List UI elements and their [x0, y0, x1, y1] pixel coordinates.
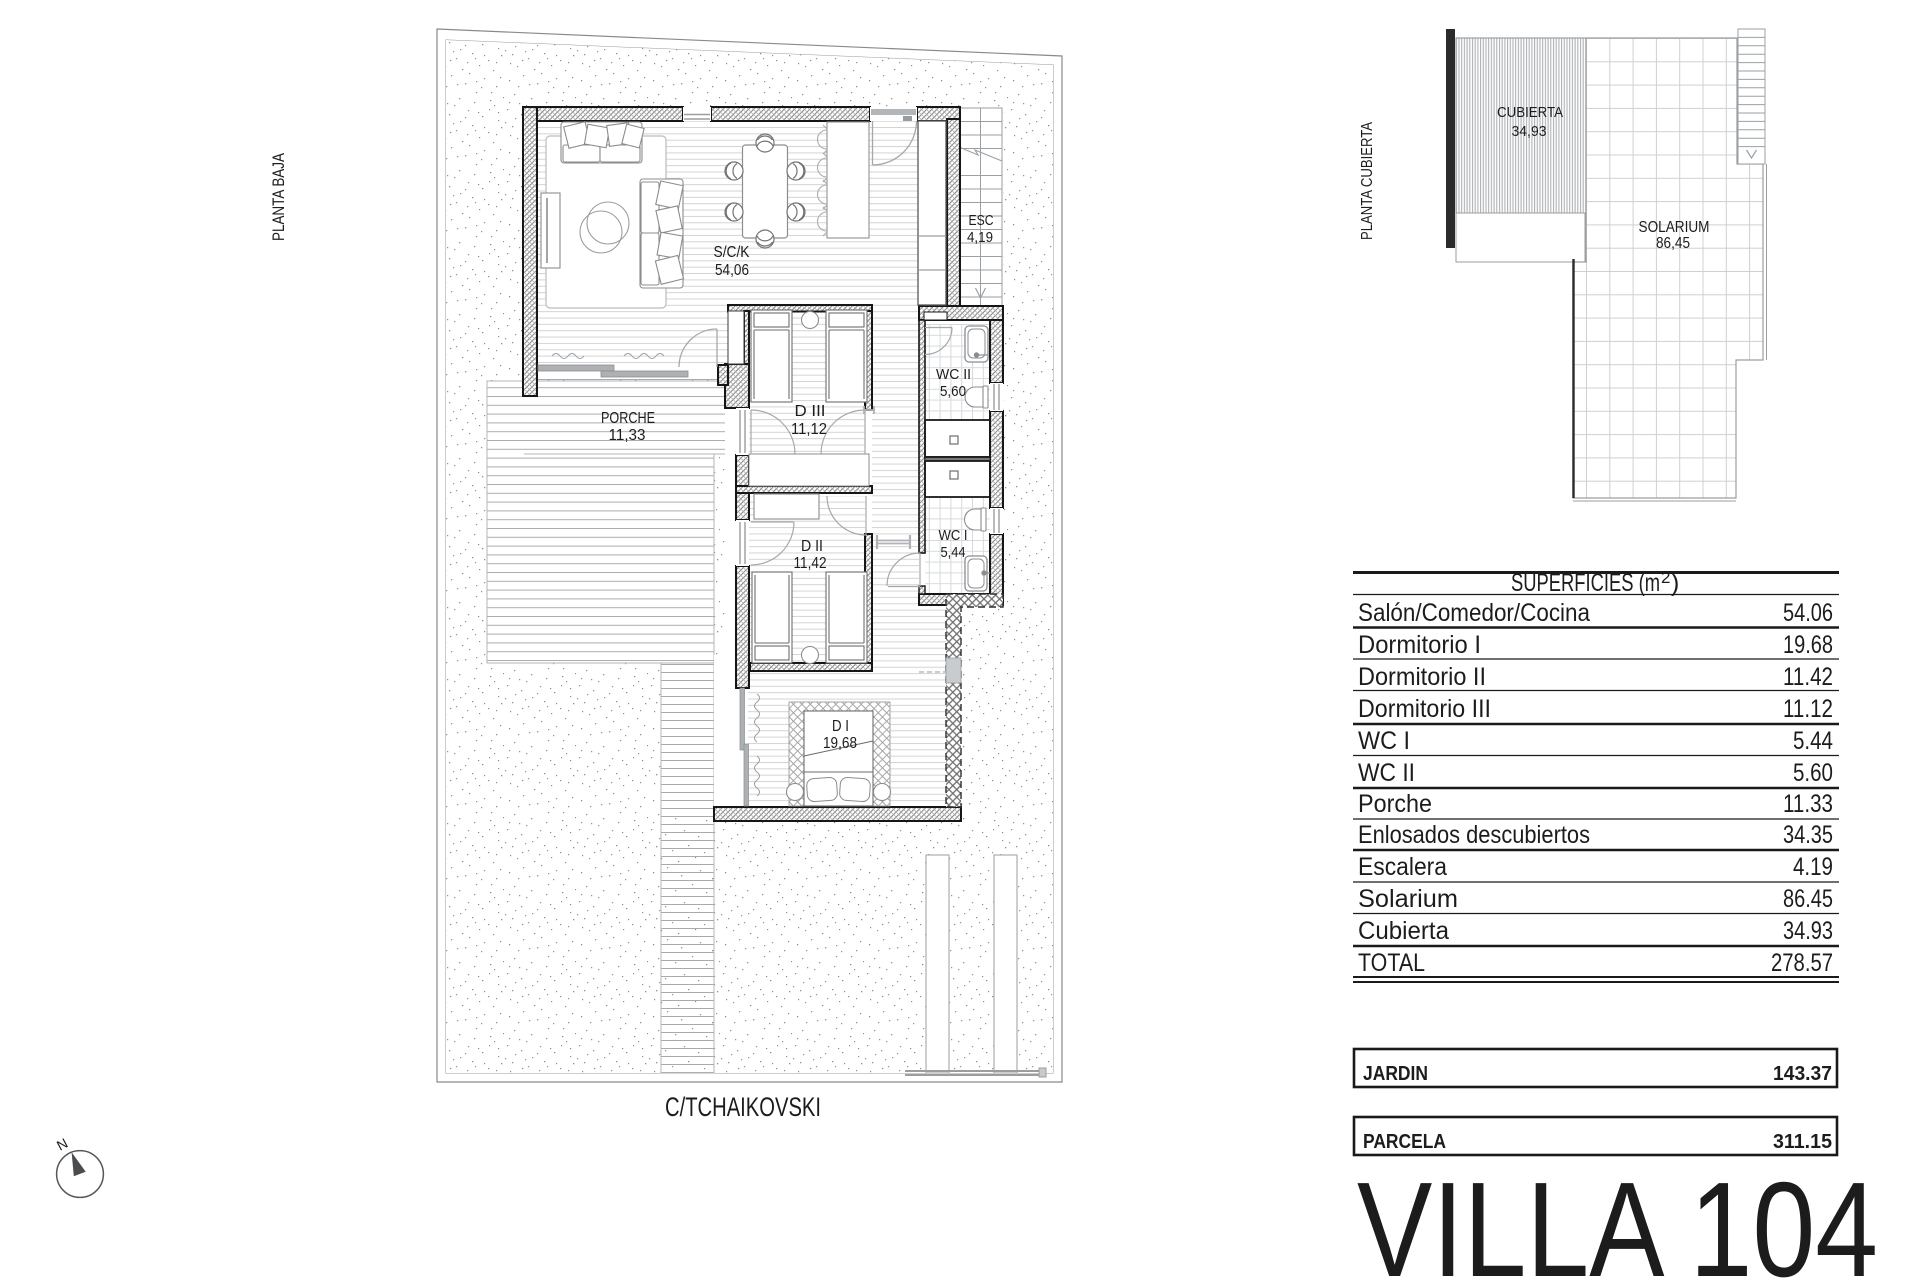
svg-text:S/C/K: S/C/K: [714, 244, 751, 261]
svg-text:Cubierta: Cubierta: [1358, 917, 1449, 945]
svg-text:C/TCHAIKOVSKI: C/TCHAIKOVSKI: [665, 1092, 821, 1122]
svg-text:WC II: WC II: [1358, 759, 1415, 787]
svg-text:SUPERFICIES (m: SUPERFICIES (m: [1511, 569, 1660, 597]
svg-text:Enlosados descubiertos: Enlosados descubiertos: [1358, 821, 1590, 849]
svg-text:34.35: 34.35: [1783, 821, 1833, 849]
svg-text:WC II: WC II: [936, 366, 971, 383]
svg-text:Dormitorio I: Dormitorio I: [1358, 631, 1481, 659]
svg-text:5.60: 5.60: [1793, 759, 1833, 787]
svg-text:Escalera: Escalera: [1358, 853, 1447, 881]
svg-text:86.45: 86.45: [1783, 885, 1833, 913]
svg-text:JARDIN: JARDIN: [1363, 1063, 1428, 1085]
svg-text:54,06: 54,06: [715, 262, 749, 279]
svg-text:278.57: 278.57: [1771, 949, 1833, 977]
svg-text:19,68: 19,68: [823, 735, 857, 752]
svg-text:D III: D III: [795, 403, 826, 420]
svg-text:4.19: 4.19: [1793, 853, 1833, 881]
svg-text:Dormitorio II: Dormitorio II: [1358, 663, 1486, 691]
svg-text:86,45: 86,45: [1656, 235, 1690, 252]
svg-text:PLANTA CUBIERTA: PLANTA CUBIERTA: [1359, 122, 1376, 240]
svg-text:19.68: 19.68: [1783, 631, 1833, 659]
svg-text:D I: D I: [832, 718, 849, 735]
svg-text:5,44: 5,44: [941, 544, 966, 561]
svg-text:Dormitorio III: Dormitorio III: [1358, 695, 1491, 723]
svg-text:VILLA 104: VILLA 104: [1357, 1154, 1878, 1280]
svg-text:Solarium: Solarium: [1358, 885, 1458, 913]
svg-text:WC I: WC I: [1358, 727, 1410, 755]
svg-text:11.42: 11.42: [1783, 663, 1833, 691]
svg-text:54.06: 54.06: [1783, 599, 1833, 627]
svg-text:SOLARIUM: SOLARIUM: [1639, 219, 1710, 236]
svg-text:11,12: 11,12: [791, 421, 827, 438]
svg-text:5.44: 5.44: [1793, 727, 1833, 755]
svg-text:143.37: 143.37: [1773, 1063, 1832, 1085]
svg-text:): ): [1671, 569, 1679, 597]
svg-text:ESC: ESC: [969, 212, 994, 229]
svg-text:PLANTA BAJA: PLANTA BAJA: [269, 152, 288, 241]
svg-text:TOTAL: TOTAL: [1358, 949, 1425, 977]
svg-text:WC I: WC I: [939, 527, 968, 544]
svg-text:CUBIERTA: CUBIERTA: [1497, 104, 1563, 121]
svg-text:PARCELA: PARCELA: [1363, 1131, 1446, 1153]
svg-text:D II: D II: [801, 538, 823, 555]
svg-text:5,60: 5,60: [940, 383, 966, 400]
svg-text:11.33: 11.33: [1783, 790, 1833, 818]
svg-text:34,93: 34,93: [1512, 123, 1547, 140]
svg-text:Porche: Porche: [1358, 790, 1432, 818]
svg-text:4,19: 4,19: [967, 229, 993, 246]
svg-text:PORCHE: PORCHE: [601, 410, 655, 427]
svg-text:11.12: 11.12: [1783, 695, 1833, 723]
svg-text:11,33: 11,33: [609, 427, 646, 444]
svg-text:2: 2: [1661, 568, 1670, 587]
svg-text:34.93: 34.93: [1783, 917, 1833, 945]
svg-text:Salón/Comedor/Cocina: Salón/Comedor/Cocina: [1358, 599, 1590, 627]
svg-text:311.15: 311.15: [1773, 1131, 1832, 1153]
svg-text:11,42: 11,42: [794, 555, 827, 572]
